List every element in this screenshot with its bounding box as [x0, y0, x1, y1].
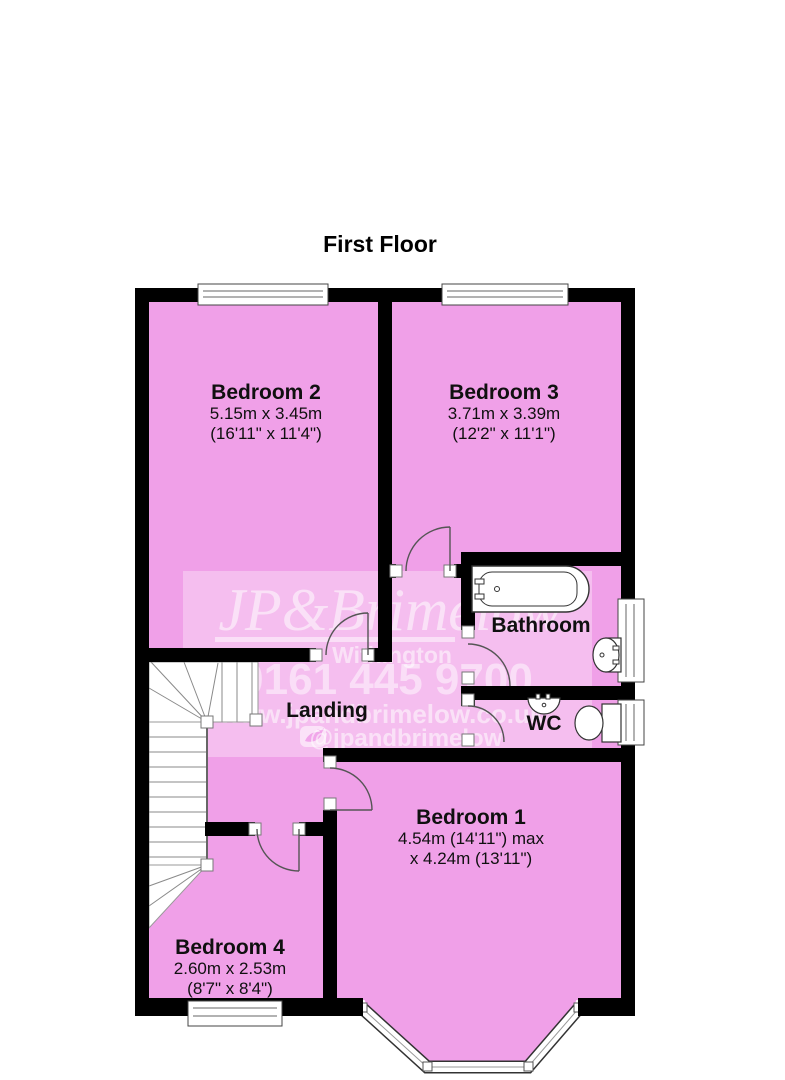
room-name: Bedroom 1 — [398, 806, 544, 829]
room-name: Bedroom 3 — [448, 381, 560, 404]
room-dim-metric: 3.71m x 3.39m — [448, 404, 560, 424]
bathroom-sink-icon — [593, 638, 621, 672]
room-name: Bathroom — [491, 614, 590, 638]
bedroom2-label: Bedroom 2 5.15m x 3.45m (16'11" x 11'4") — [210, 381, 322, 443]
bedroom2-window — [198, 284, 328, 305]
room-name: Bedroom 2 — [210, 381, 322, 404]
room-name: Bedroom 4 — [174, 936, 286, 959]
room-dim-imperial: (12'2" x 11'1") — [448, 424, 560, 444]
room-dim-line2: x 4.24m (13'11") — [398, 849, 544, 869]
bedroom4-window — [188, 1001, 282, 1026]
bathroom-label: Bathroom — [491, 614, 590, 638]
room-dim-imperial: (16'11" x 11'4") — [210, 424, 322, 444]
bedroom3-window — [442, 284, 568, 305]
bathtub-icon — [472, 566, 589, 612]
floorplan-page: First Floor JP&Brimelow Withington 0161 … — [0, 0, 785, 1080]
toilet-icon — [575, 704, 621, 742]
room-dim-imperial: (8'7" x 8'4") — [174, 979, 286, 999]
floorplan-drawing: JP&Brimelow Withington 0161 445 9700 www… — [0, 0, 785, 1080]
room-name: WC — [527, 712, 562, 736]
bedroom3-label: Bedroom 3 3.71m x 3.39m (12'2" x 11'1") — [448, 381, 560, 443]
bedroom4-label: Bedroom 4 2.60m x 2.53m (8'7" x 8'4") — [174, 936, 286, 998]
room-dim-metric: 2.60m x 2.53m — [174, 959, 286, 979]
wc-label: WC — [527, 712, 562, 736]
bedroom1-label: Bedroom 1 4.54m (14'11") max x 4.24m (13… — [398, 806, 544, 868]
room-dim-metric: 5.15m x 3.45m — [210, 404, 322, 424]
wc-window — [618, 700, 644, 745]
landing-label: Landing — [286, 699, 368, 723]
room-name: Landing — [286, 699, 368, 723]
room-dim-line1: 4.54m (14'11") max — [398, 829, 544, 849]
bathroom-window — [618, 599, 644, 682]
